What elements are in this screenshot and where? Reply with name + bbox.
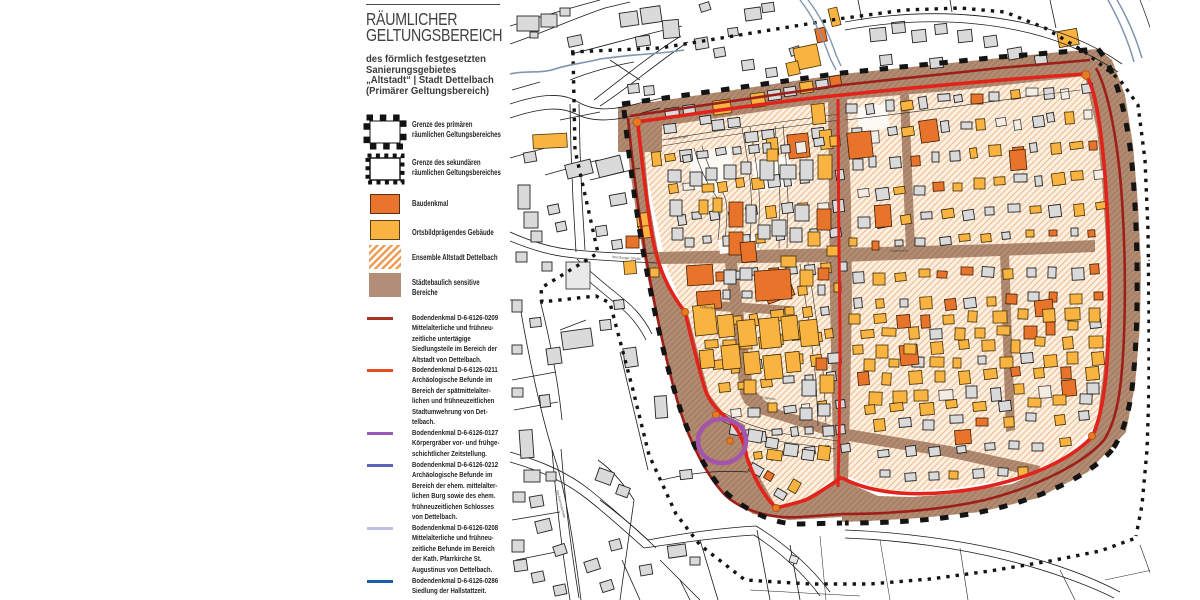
svg-text:Falterstraße: Falterstraße	[890, 249, 908, 253]
